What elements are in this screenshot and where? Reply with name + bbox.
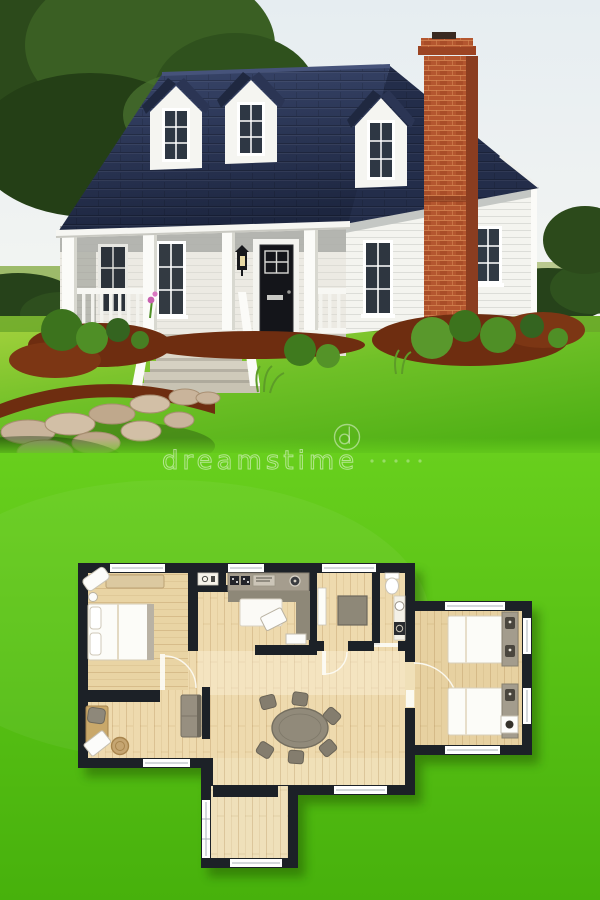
door-leaf-bathroom [374, 643, 398, 647]
watermark-text: dreamstime [162, 446, 358, 476]
bed-left [81, 566, 164, 660]
bath-sink [395, 602, 404, 611]
door-leaf-wing [406, 690, 414, 707]
pink-flower [148, 297, 155, 304]
bed-right-bottom [448, 688, 504, 735]
nightstand-lamp [506, 721, 514, 729]
bench [106, 575, 164, 588]
door-mail-plate [267, 295, 283, 300]
dining-chair [292, 692, 309, 707]
lamp [89, 593, 98, 602]
hallway-highlight [198, 651, 405, 695]
corner-trim [531, 188, 537, 314]
window-right-side [361, 240, 395, 318]
toilet [386, 578, 399, 594]
washer [394, 622, 405, 635]
stock-image-canvas: dreamstime [0, 0, 600, 900]
porch-column [220, 224, 237, 340]
square-table [338, 596, 367, 625]
pillow [90, 633, 101, 655]
sofa-arm [296, 591, 310, 640]
roofline-shadow [424, 196, 466, 202]
front-door [253, 239, 299, 337]
door-leaf-bedroom [160, 654, 165, 690]
open-door-leaf [318, 588, 326, 625]
porch-column [302, 224, 320, 340]
house-photo [0, 0, 600, 488]
door-knob [287, 290, 291, 294]
window-by-door [154, 241, 188, 319]
dining-chair [288, 750, 304, 764]
cooktop [230, 576, 239, 585]
bed-right-top [448, 616, 504, 663]
basket [112, 738, 129, 755]
oven [241, 576, 250, 585]
brick-chimney [418, 32, 478, 334]
desk-chair [87, 707, 106, 724]
scene-svg: dreamstime [0, 0, 600, 900]
side-table [286, 634, 306, 644]
pillow [90, 607, 101, 629]
chimney-flue [432, 32, 456, 39]
door-leaf-study [322, 651, 326, 675]
